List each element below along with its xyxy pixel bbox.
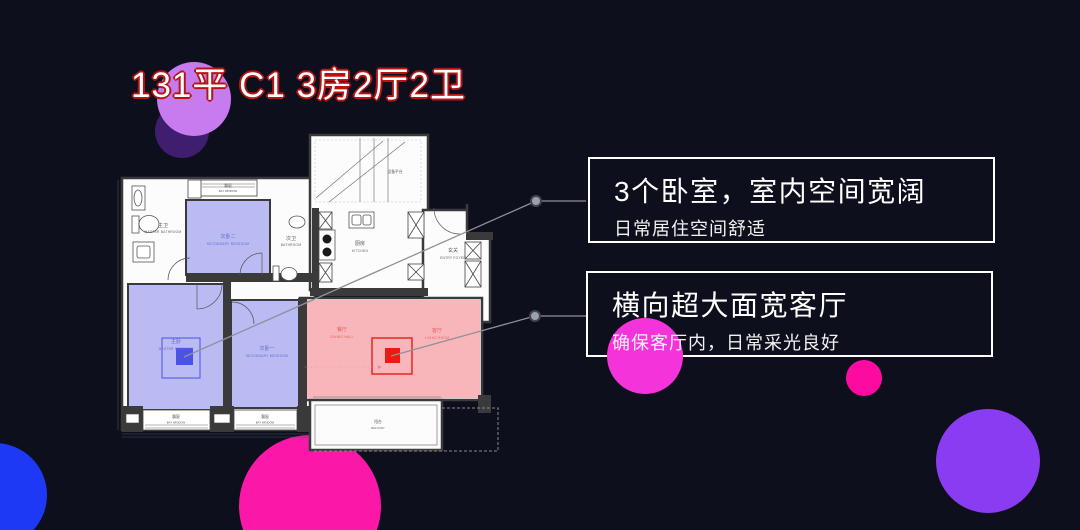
dining-hall-label-en: DINING HALL bbox=[330, 335, 353, 339]
kitchen-label-cn: 厨房 bbox=[355, 240, 365, 247]
callout-bedrooms-subheading: 日常居住空间舒适 bbox=[614, 215, 993, 241]
callout-bedrooms-heading: 3个卧室，室内空间宽阔 bbox=[614, 170, 993, 210]
bay-window-bl-label-cn: 飘窗 bbox=[172, 414, 180, 419]
bay-window-top-label-en: BAY WINDOW bbox=[219, 189, 238, 193]
callout-living: 横向超大面宽客厅 确保客厅内，日常采光良好 bbox=[586, 271, 993, 357]
slide: 131平 C1 3房2厅2卫 bbox=[0, 0, 1080, 530]
callout-bedrooms: 3个卧室，室内空间宽阔 日常居住空间舒适 bbox=[588, 157, 995, 243]
living-room-label-en: LIVING ROOM bbox=[425, 336, 450, 340]
bathroom-2-label-cn: 次卫 bbox=[286, 235, 296, 242]
bay-window-top-label-cn: 飘窗 bbox=[224, 183, 232, 188]
living-room-label-cn: 客厅 bbox=[432, 327, 442, 334]
dining-hall-label-cn: 餐厅 bbox=[337, 326, 347, 333]
entry-notch bbox=[467, 204, 492, 232]
purple-big-circle bbox=[936, 409, 1040, 513]
master-bedroom-label-cn: 主卧 bbox=[171, 338, 181, 345]
bay-window-bm-label-en: BAY WINDOW bbox=[256, 421, 275, 425]
master-bedroom-label-en: MASTER BEDROOM bbox=[159, 347, 194, 351]
bay-window-bm-label-cn: 飘窗 bbox=[261, 414, 269, 419]
floor-plan: 主卫 MASTER BATHROOM 飘窗 BAY WINDOW 次卧二 SEC… bbox=[113, 128, 507, 462]
bathroom-2-label-en: BATHROOM bbox=[281, 243, 302, 247]
equipment-platform-label: 设备平台 bbox=[387, 169, 402, 174]
callout-living-subheading: 确保客厅内，日常采光良好 bbox=[612, 329, 991, 355]
callout-living-heading: 横向超大面宽客厅 bbox=[612, 284, 991, 324]
bay-window-bl-label-en: BAY WINDOW bbox=[167, 421, 186, 425]
secondary-bedroom-2-label-en: SECONDARY BEDROOM bbox=[207, 242, 250, 246]
page-title: 131平 C1 3房2厅2卫 bbox=[131, 57, 466, 108]
entry-foyer-label-en: ENTRY FOYER bbox=[440, 256, 466, 260]
master-bathroom-label-cn: 主卫 bbox=[158, 222, 168, 229]
living-room-marker bbox=[385, 348, 400, 363]
balcony-label-cn: 阳台 bbox=[374, 419, 382, 424]
secondary-bedroom-1-label-cn: 次卧一 bbox=[259, 345, 274, 352]
pink-small-circle bbox=[846, 360, 882, 396]
balcony-label-en: BALCONY bbox=[371, 426, 385, 430]
entry-foyer-label-cn: 玄关 bbox=[448, 247, 458, 254]
master-bathroom-label-en: MASTER BATHROOM bbox=[145, 230, 182, 234]
leader-dot-living bbox=[530, 311, 540, 321]
blue-circle bbox=[0, 443, 47, 530]
secondary-bedroom-2-label-cn: 次卧二 bbox=[220, 233, 235, 240]
plan-balcony-block bbox=[310, 400, 442, 450]
kitchen-label-en: KITCHEN bbox=[352, 249, 368, 253]
leader-dot-bedrooms bbox=[531, 196, 541, 206]
secondary-bedroom-1-label-en: SECONDARY BEDROOM bbox=[246, 354, 289, 358]
